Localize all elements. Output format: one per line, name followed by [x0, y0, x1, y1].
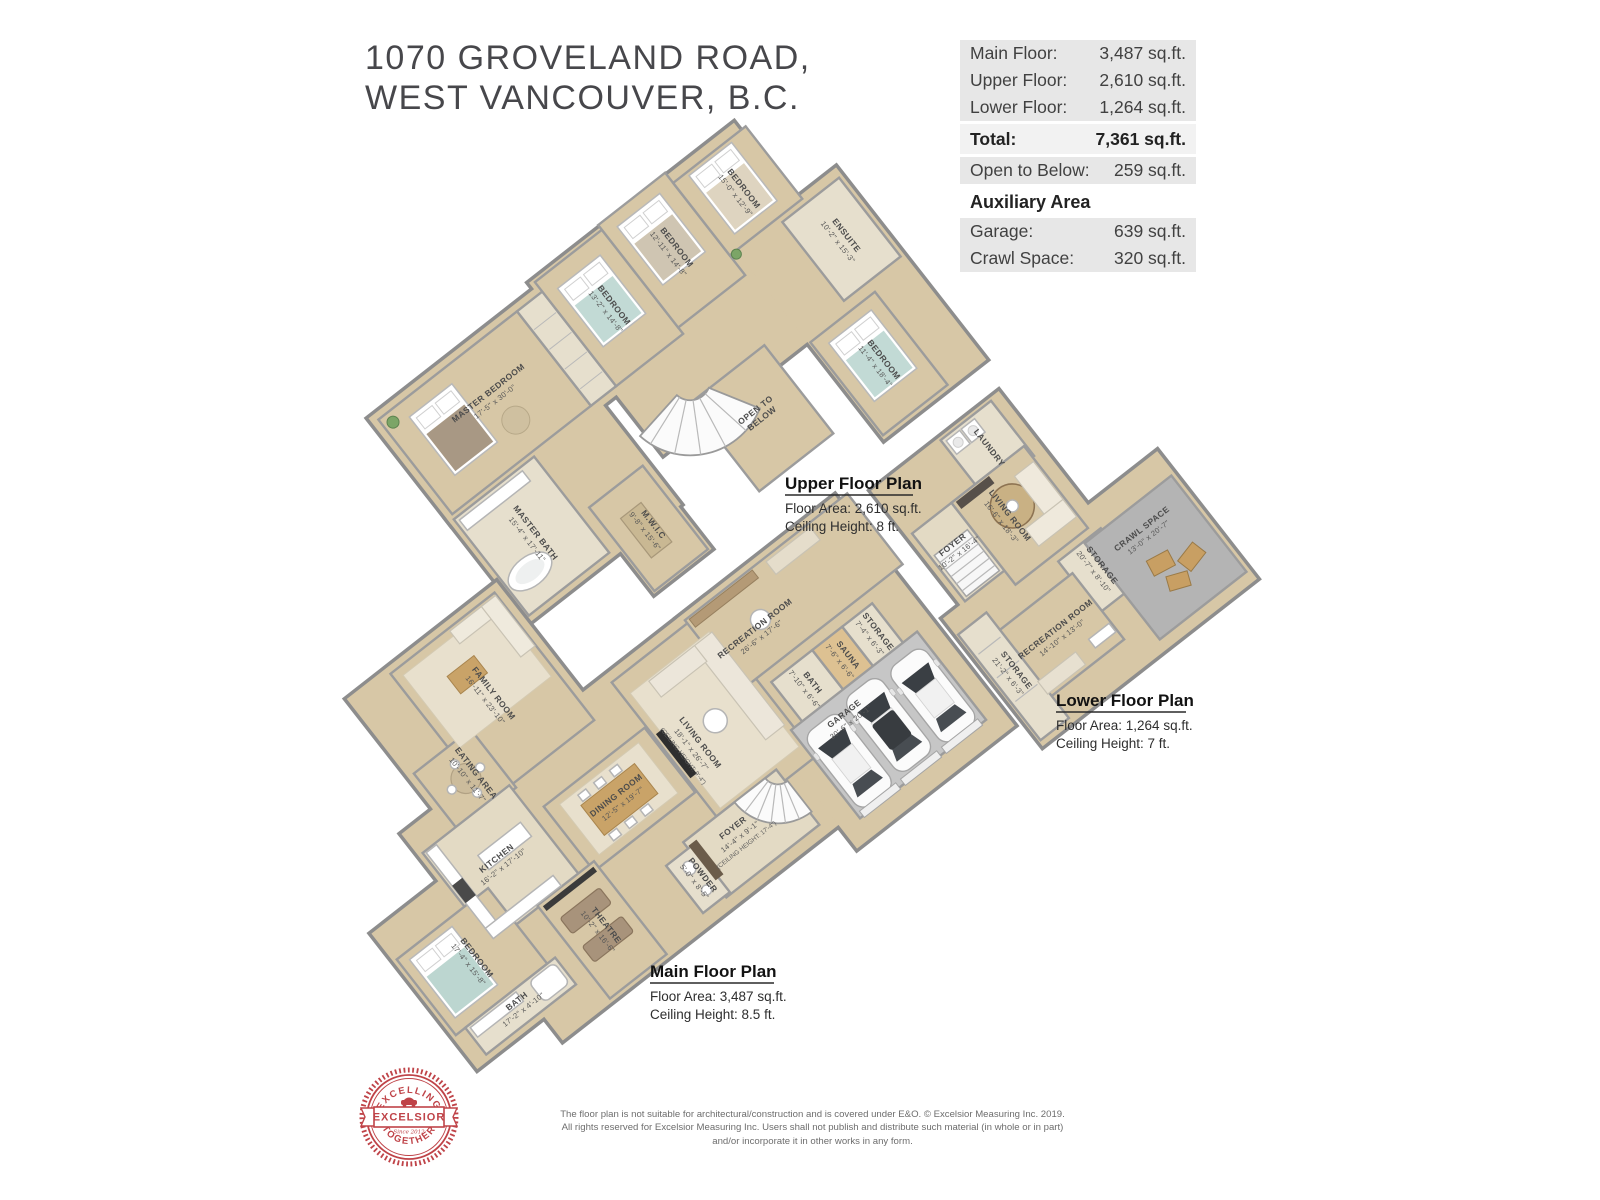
logo-banner-text: EXCELSIOR [373, 1112, 446, 1124]
caption-area: Floor Area: 3,487 sq.ft. [650, 989, 787, 1004]
caption-ceiling: Ceiling Height: 7 ft. [1056, 736, 1170, 751]
caption-title: Main Floor Plan [650, 962, 777, 981]
caption-area: Floor Area: 1,264 sq.ft. [1056, 718, 1193, 733]
excelsior-logo: EXCELLING TOGETHER EXCELSIOR Since 2012 [352, 1060, 466, 1174]
excelsior-badge-icon: EXCELLING TOGETHER EXCELSIOR Since 2012 [352, 1060, 466, 1174]
logo-since-text: Since 2012 [393, 1130, 425, 1136]
caption-title: Lower Floor Plan [1056, 691, 1194, 710]
floor-plans-svg: MASTER BEDROOM 17'-5" x 30'-0" BEDROOM 1… [0, 0, 1600, 1200]
caption-ceiling: Ceiling Height: 8.5 ft. [650, 1007, 775, 1022]
caption-ceiling: Ceiling Height: 8 ft. [785, 519, 899, 534]
floor-plan-poster: 1070 GROVELAND ROAD, WEST VANCOUVER, B.C… [0, 0, 1600, 1200]
main-plan-caption: Main Floor Plan Floor Area: 3,487 sq.ft.… [650, 962, 787, 1022]
caption-title: Upper Floor Plan [785, 474, 922, 493]
disclaimer-text: The floor plan is not suitable for archi… [560, 1108, 1065, 1148]
caption-area: Floor Area: 2,610 sq.ft. [785, 501, 922, 516]
lower-plan-caption: Lower Floor Plan Floor Area: 1,264 sq.ft… [1056, 691, 1194, 751]
